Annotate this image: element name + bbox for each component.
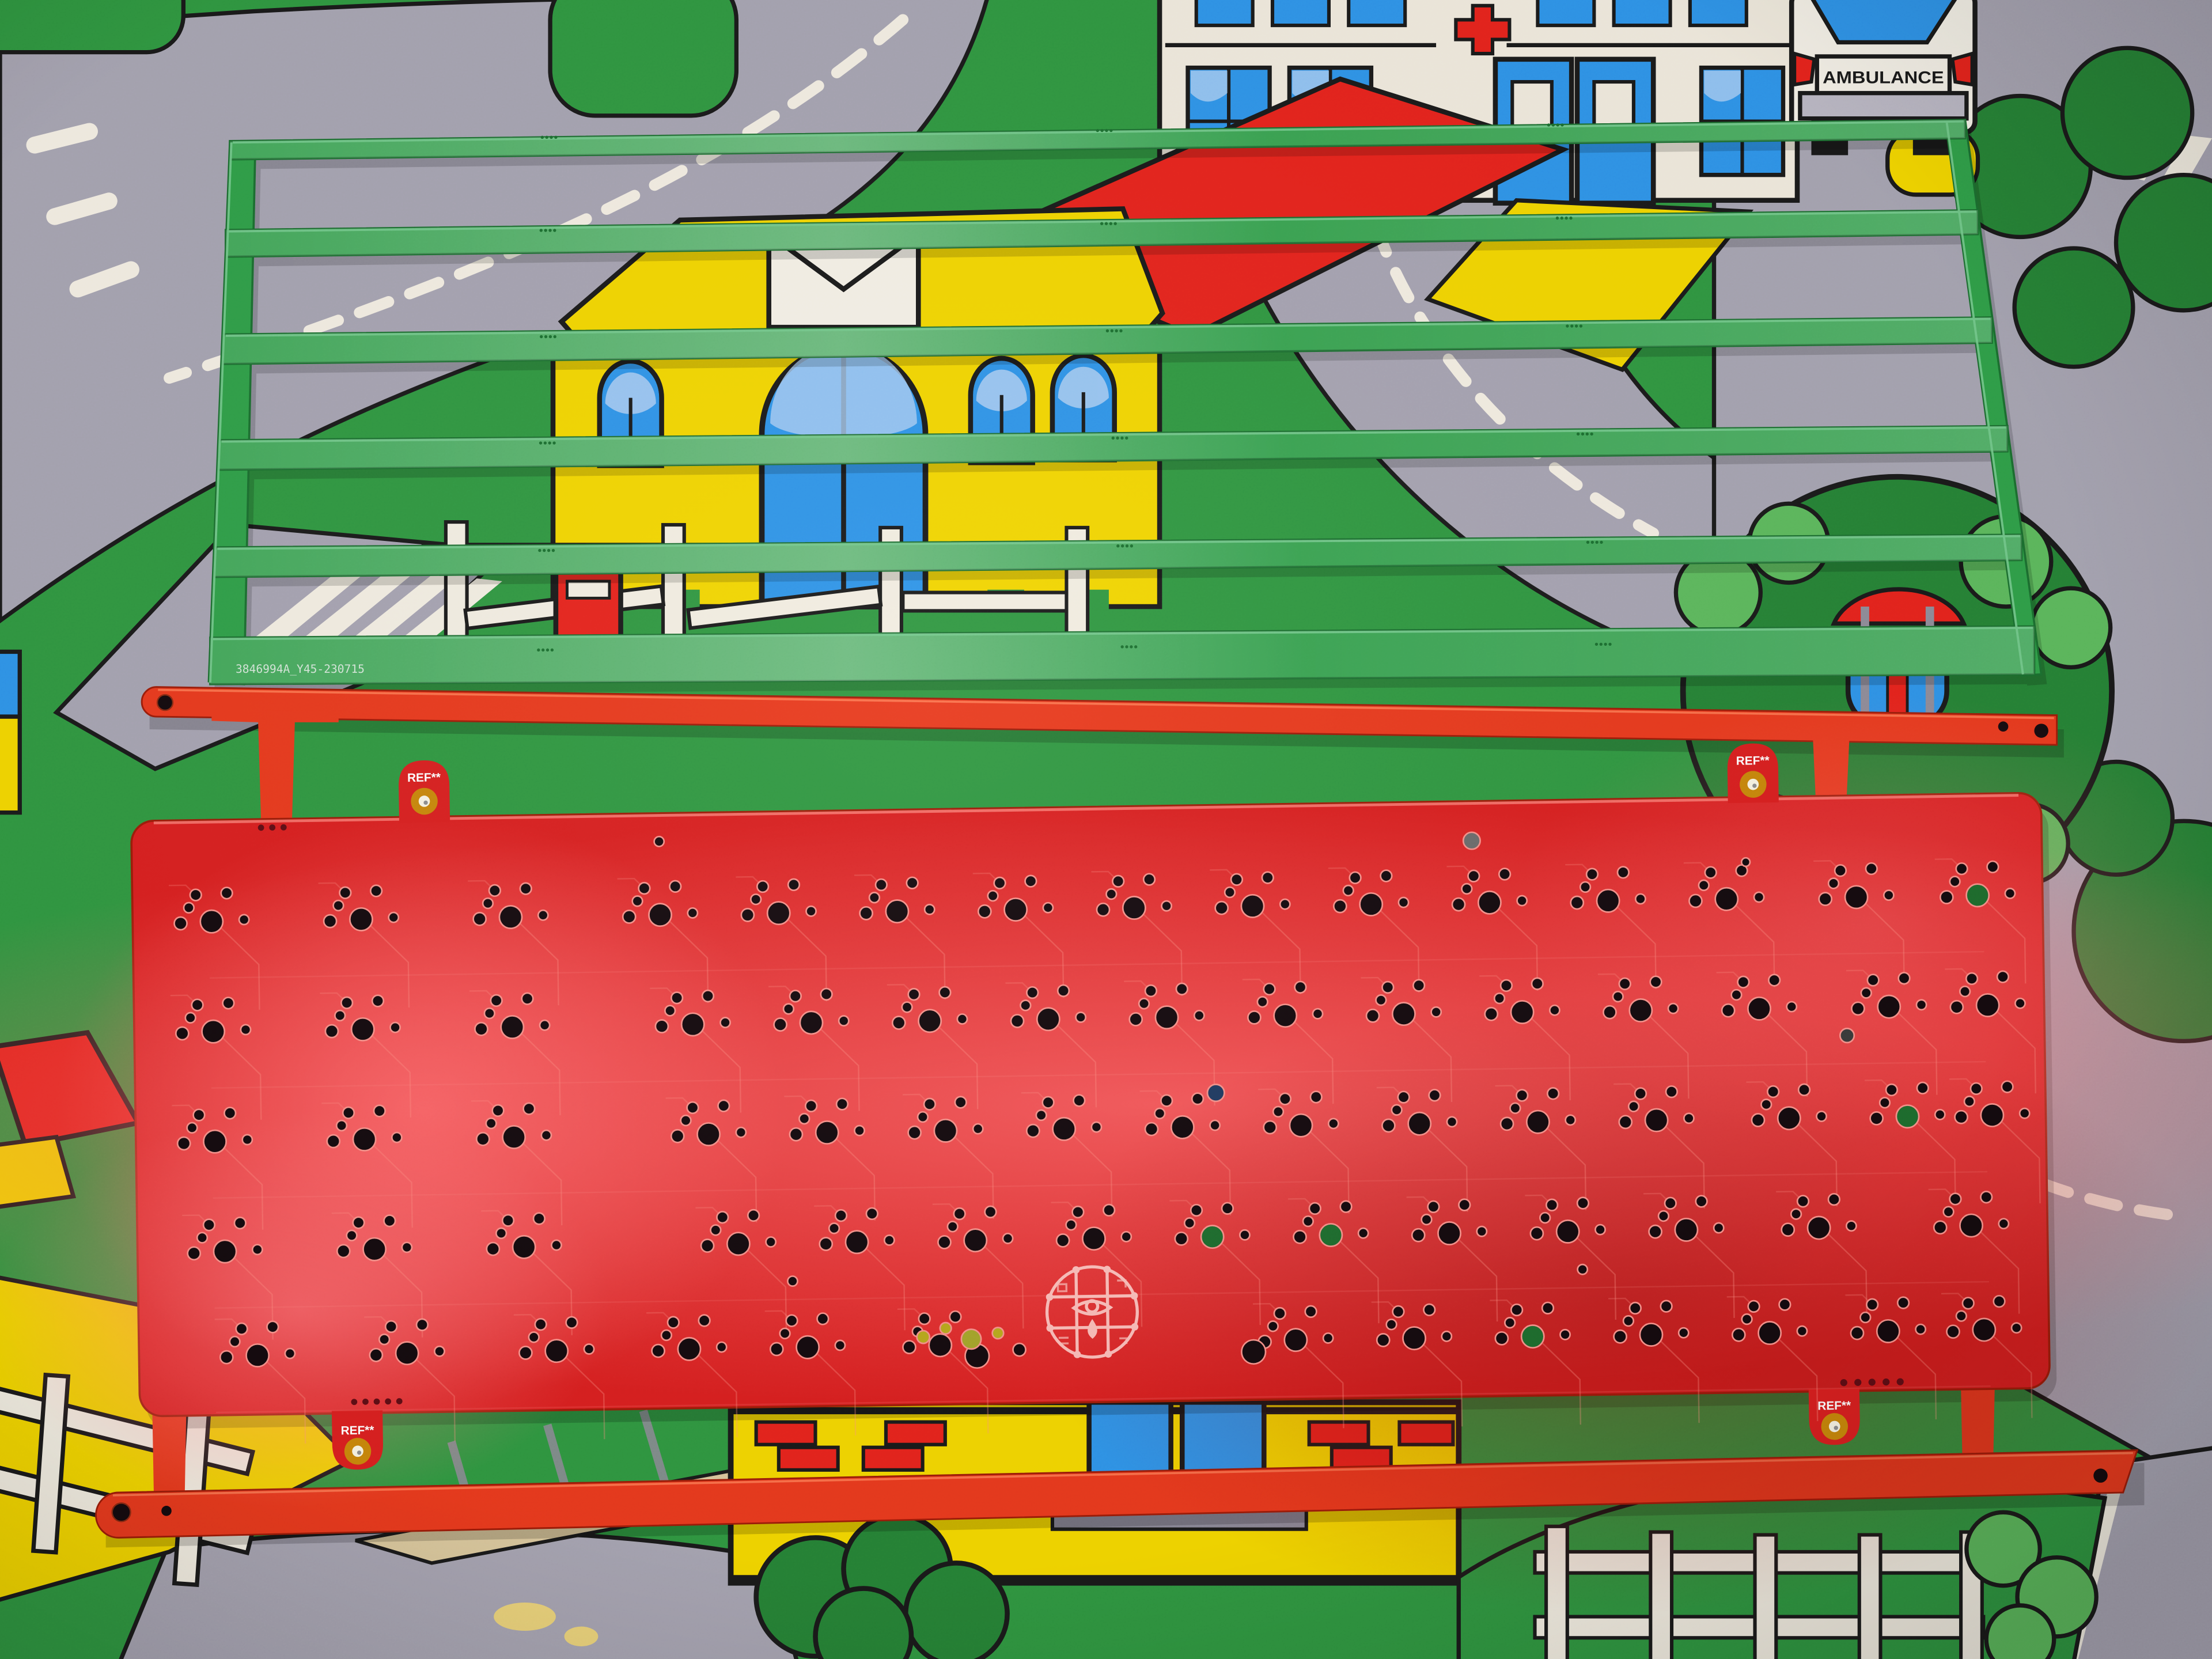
photo-canvas: AMBULANCE	[0, 0, 2212, 1659]
grain-overlay	[0, 0, 2212, 1659]
